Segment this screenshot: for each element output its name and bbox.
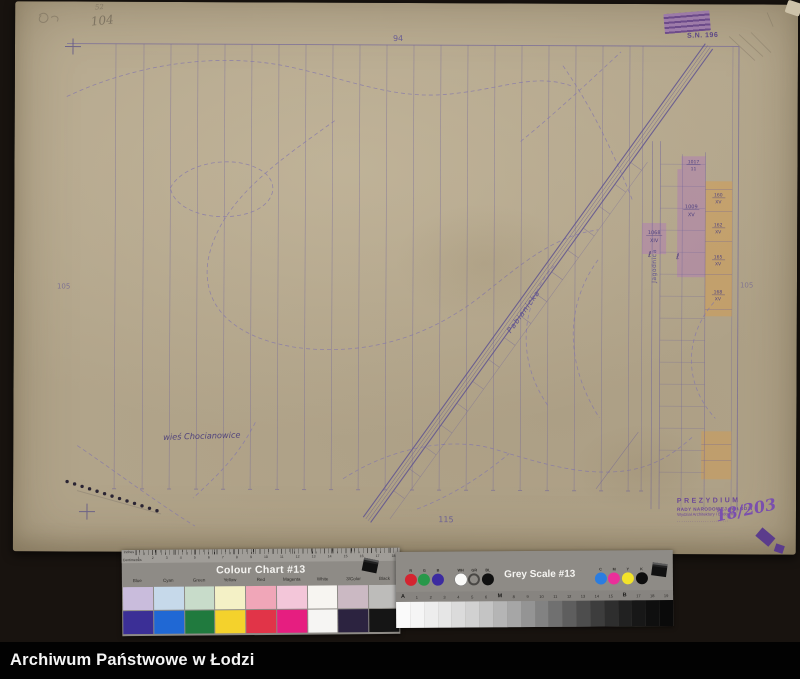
grey-scale-chart: RGBWHGRBLGrey Scale #13CMYK A123456M8910…: [396, 550, 674, 628]
grey-step-label: 9: [521, 593, 535, 598]
dot-swatch: [482, 573, 494, 585]
street-label: Jagodnica: [651, 249, 658, 284]
ruler-number: 5: [194, 556, 196, 560]
ruler-number: 6: [208, 555, 210, 559]
calibration-dot-g: G: [417, 568, 431, 586]
ruler-number: 4: [180, 556, 182, 560]
grey-step-label: 15: [604, 593, 618, 598]
section-letter: ℓ: [647, 250, 651, 259]
colour-column-label: Magenta: [276, 577, 307, 586]
dot-label: C: [599, 567, 602, 571]
calibration-dot-c: C: [594, 567, 608, 585]
dot-label: K: [640, 567, 643, 571]
village-label: wieś Chocianowice: [163, 430, 241, 442]
grey-step-label: M: [493, 593, 507, 599]
grey-step-swatch: [632, 600, 646, 626]
calibration-dot-wh: WH: [454, 568, 468, 586]
colour-swatches: [122, 585, 400, 636]
grey-step-label: 11: [548, 593, 562, 598]
grey-step-label: 2: [424, 594, 438, 599]
sheet-number-bottom: 115: [438, 515, 453, 524]
colour-chart: Inches Centimetres 123456789101112131415…: [122, 548, 401, 636]
archival-scan: 94 115 105 105 wieś Chocianowice Pabiani…: [0, 0, 800, 679]
colour-swatch-solid-green: [185, 610, 215, 633]
map-drawing: 94 115 105 105 wieś Chocianowice Pabiani…: [13, 1, 798, 553]
colour-swatch-solid-blue: [123, 611, 153, 634]
calibration-dot-y: Y: [621, 567, 635, 585]
grey-step-label: 12: [562, 593, 576, 598]
svg-text:11: 11: [691, 166, 697, 172]
colour-swatch-solid-white: [308, 609, 338, 632]
colour-swatch-pastel-cyan: [154, 587, 184, 610]
grey-step-swatch: [590, 601, 604, 627]
ruler-number: 14: [328, 554, 332, 558]
grey-step-label: 19: [659, 593, 673, 598]
grey-step-label: 17: [631, 593, 645, 598]
grey-step-swatch: [410, 602, 424, 628]
ruler-number: 8: [236, 555, 238, 559]
grey-scale-title: Grey Scale #13: [497, 560, 583, 580]
colour-swatch-solid-3/color: [339, 609, 369, 632]
dot-label: G: [423, 568, 426, 572]
ruler-number: 12: [296, 555, 300, 559]
grey-step-swatch: [479, 601, 493, 627]
calibration-dot-gr: GR: [467, 568, 481, 586]
grey-step-swatch: [618, 600, 632, 626]
grey-step-swatch: [604, 600, 618, 626]
grey-step-swatch: [438, 602, 452, 628]
map-frame: [65, 44, 739, 513]
dot-swatch: [455, 573, 467, 585]
dot-label: GR: [471, 568, 477, 572]
dot-label: Y: [627, 567, 630, 571]
colour-swatch-pastel-green: [184, 586, 214, 609]
colour-column-label: Cyan: [153, 578, 184, 587]
svg-text:XV: XV: [688, 212, 695, 218]
dot-swatch: [405, 574, 417, 586]
contour-lines: [65, 50, 717, 529]
grey-step-swatch: [521, 601, 535, 627]
colour-swatch-pastel-blue: [123, 587, 153, 610]
inventory-number: S.N. 196: [687, 32, 718, 40]
calibration-dot-bl: BL: [481, 568, 495, 586]
svg-text:1017: 1017: [688, 159, 700, 165]
grey-step-swatch: [465, 601, 479, 627]
grey-step-swatch: [535, 601, 549, 627]
colour-swatch-pastel-black: [369, 585, 399, 608]
svg-text:XV: XV: [715, 199, 722, 205]
colour-swatch-pastel-yellow: [215, 586, 245, 609]
ruler-number: 17: [376, 554, 380, 558]
calibration-dot-k: K: [635, 567, 649, 585]
grey-step-swatch: [451, 601, 465, 627]
colour-column-label: Blue: [122, 578, 153, 587]
grey-step-label: 8: [507, 594, 521, 599]
colour-swatch-pastel-white: [308, 585, 338, 608]
ruler-number: 13: [312, 555, 316, 559]
grey-step-label: 10: [535, 593, 549, 598]
svg-text:XV: XV: [715, 261, 722, 267]
dot-swatch: [432, 574, 444, 586]
dot-label: B: [437, 568, 440, 572]
map-labels: 94 115 105 105 wieś Chocianowice Pabiani…: [56, 3, 755, 526]
grey-step-swatch: [562, 601, 576, 627]
colour-swatch-solid-black: [369, 609, 399, 632]
grey-step-swatch: [396, 602, 410, 628]
colour-column-label: 3/Color: [338, 576, 369, 585]
svg-text:168: 168: [714, 289, 723, 295]
colour-swatch-solid-red: [246, 610, 276, 633]
dot-swatch: [595, 572, 607, 584]
colour-swatch-solid-magenta: [277, 610, 307, 633]
grey-step-strip: [396, 600, 673, 628]
ruler-inches-label: Inches: [124, 550, 134, 554]
svg-text:165: 165: [714, 254, 723, 260]
grey-step-label: 1: [410, 594, 424, 599]
svg-text:XV: XV: [715, 296, 722, 302]
ruler-number: 16: [360, 554, 364, 558]
grey-step-swatch: [548, 601, 562, 627]
ruler-number: 7: [222, 555, 224, 559]
ruler-number: 3: [166, 556, 168, 560]
ruler-number: 2: [152, 556, 154, 560]
grey-step-label: A: [396, 594, 410, 600]
grey-step-label: 18: [645, 593, 659, 598]
grey-step-swatch: [576, 601, 590, 627]
grey-step-label: 6: [479, 594, 493, 599]
svg-text:160: 160: [714, 192, 723, 198]
kodak-logo-patch: [651, 562, 667, 577]
dot-label: BL: [485, 568, 490, 572]
ruler-number: 9: [250, 555, 252, 559]
grey-step-swatch: [507, 601, 521, 627]
svg-text:162: 162: [714, 222, 723, 228]
dot-swatch: [635, 572, 647, 584]
dot-label: M: [613, 567, 616, 571]
grey-step-label: 13: [576, 593, 590, 598]
grey-step-swatch: [424, 602, 438, 628]
footer-band: Archiwum Państwowe w Łodzi: [0, 642, 800, 679]
colour-column-label: Yellow: [215, 577, 246, 586]
archive-name: Archiwum Państwowe w Łodzi: [10, 651, 254, 670]
kodak-logo-patch: [362, 558, 379, 574]
grey-step-label: 5: [465, 594, 479, 599]
grey-step-label: 14: [590, 593, 604, 598]
ruler-number: 11: [280, 555, 284, 559]
pencil-note-small: 52: [95, 3, 105, 12]
pencil-note: 104: [90, 12, 114, 28]
grey-step-label: 4: [451, 594, 465, 599]
grey-step-swatch: [493, 601, 507, 627]
svg-text:1068: 1068: [648, 230, 661, 236]
dot-swatch: [622, 572, 634, 584]
svg-text:XIV: XIV: [650, 238, 659, 244]
dot-label: WH: [457, 568, 463, 572]
svg-text:1009: 1009: [685, 204, 698, 210]
grey-step-label: B: [618, 592, 632, 598]
colour-swatch-pastel-red: [246, 586, 276, 609]
calibration-dot-m: M: [607, 567, 621, 585]
colour-swatch-solid-cyan: [154, 611, 184, 634]
ruler-number: 10: [264, 555, 268, 559]
calibration-dot-r: R: [404, 568, 418, 586]
map-sheet: 94 115 105 105 wieś Chocianowice Pabiani…: [13, 1, 798, 554]
colour-column-label: Red: [245, 577, 276, 586]
dot-swatch: [608, 572, 620, 584]
section-letter: ℓ: [675, 252, 679, 261]
ruler-numbers: 123456789101112131415161718: [138, 554, 396, 560]
colour-chart-title: Colour Chart #13: [216, 563, 306, 576]
tree-dot-row: [65, 480, 161, 514]
grey-step-label: 3: [438, 594, 452, 599]
dot-swatch: [418, 574, 430, 586]
ruler-number: 15: [344, 554, 348, 558]
svg-text:XV: XV: [715, 229, 722, 235]
dot-label: R: [409, 568, 412, 572]
violet-stamp: [663, 10, 710, 34]
sheet-number-right: 105: [740, 281, 753, 289]
calibration-dot-b: B: [431, 568, 445, 586]
grey-step-swatch: [645, 600, 659, 626]
colour-column-label: Green: [184, 577, 215, 586]
ruler-number: 1: [138, 556, 140, 560]
grey-step-swatch: [659, 600, 673, 626]
parcel-lines: [112, 44, 645, 491]
colour-swatch-pastel-magenta: [277, 586, 307, 609]
colour-column-label: White: [307, 576, 338, 585]
dot-swatch: [468, 573, 480, 585]
sheet-number-left: 105: [57, 282, 70, 290]
colour-swatch-solid-yellow: [215, 610, 245, 633]
grey-scale-header: RGBWHGRBLGrey Scale #13CMYK: [396, 550, 673, 592]
colour-swatch-pastel-3/color: [338, 585, 368, 608]
sheet-number-top: 94: [393, 34, 403, 43]
